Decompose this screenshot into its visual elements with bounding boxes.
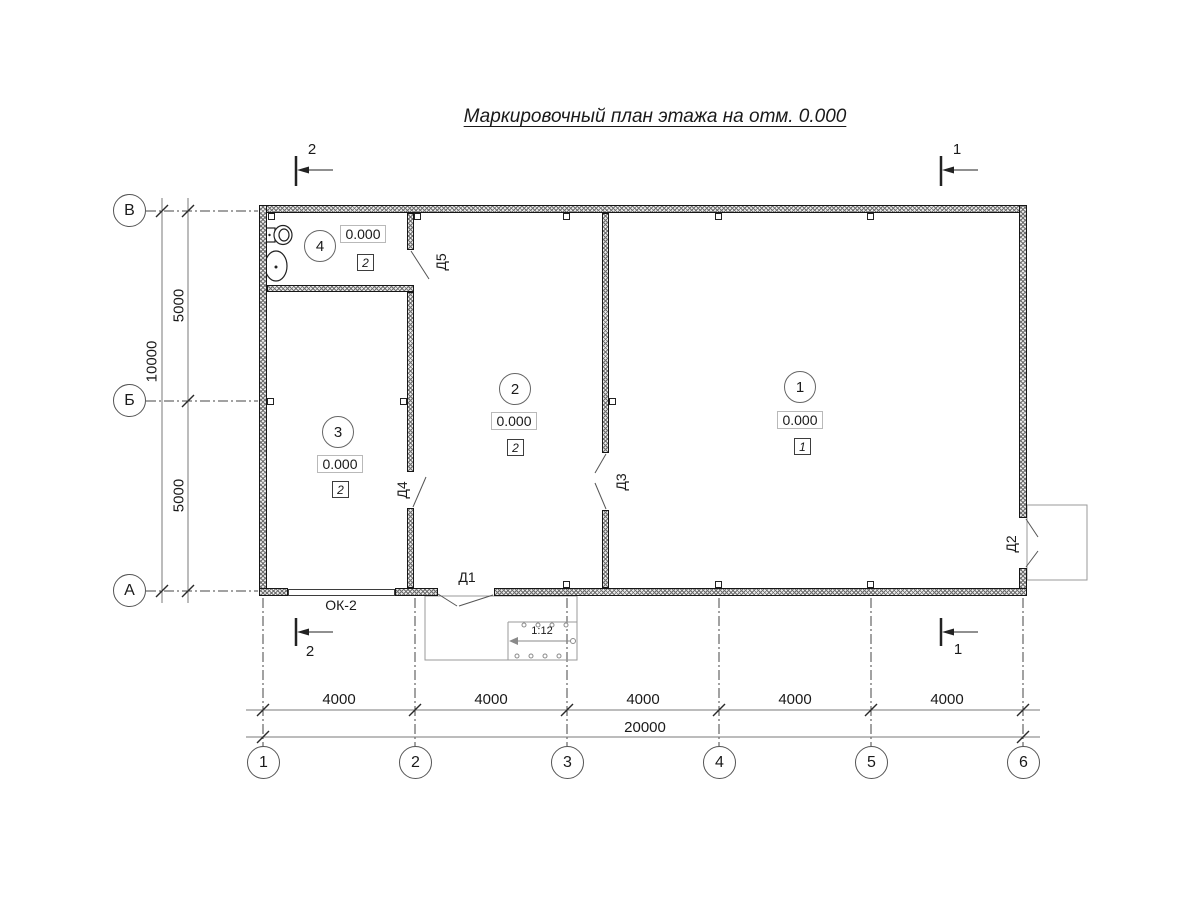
axis-bubble-v: В — [113, 194, 146, 227]
dim-20000-total: 20000 — [618, 719, 672, 736]
wall-exterior-right-upper — [1019, 205, 1027, 518]
wall-interior-a2 — [407, 292, 414, 472]
dim-4000-2: 4000 — [469, 691, 513, 708]
pilaster-tab — [563, 213, 570, 220]
wall-interior-a3 — [407, 508, 414, 588]
pilaster-tab — [267, 398, 274, 405]
dim-4000-4: 4000 — [773, 691, 817, 708]
dim-5000-1: 5000 — [171, 286, 188, 326]
room-3-elevation: 0.000 — [317, 455, 363, 473]
room-4-finish: 2 — [357, 254, 374, 271]
room-1-finish: 1 — [794, 438, 811, 455]
wall-interior-room4-bottom — [267, 285, 414, 292]
window-ok2 — [288, 589, 395, 596]
door-label-d5: Д5 — [433, 249, 449, 275]
dim-5000-2: 5000 — [171, 476, 188, 516]
room-4-number: 4 — [304, 230, 336, 262]
pilaster-tab — [867, 213, 874, 220]
room-2-elevation: 0.000 — [491, 412, 537, 430]
pilaster-tab — [414, 213, 421, 220]
page-title: Маркировочный план этажа на отм. 0.000 — [450, 106, 860, 128]
room-3-number: 3 — [322, 416, 354, 448]
wall-exterior-left — [259, 205, 267, 596]
dim-10000-total: 10000 — [144, 336, 161, 388]
window-label: ОК-2 — [316, 597, 366, 613]
room-3-finish: 2 — [332, 481, 349, 498]
axis-bubble-b: Б — [113, 384, 146, 417]
door-label-d1: Д1 — [453, 569, 481, 585]
floor-plan-drawing: Маркировочный план этажа на отм. 0.000 1… — [0, 0, 1200, 900]
ramp-slope-label: 1:12 — [524, 625, 560, 637]
dim-4000-3: 4000 — [621, 691, 665, 708]
axis-bubble-4: 4 — [703, 746, 736, 779]
pilaster-tab — [563, 581, 570, 588]
wall-exterior-bottom-c — [494, 588, 1027, 596]
axis-bubble-5: 5 — [855, 746, 888, 779]
section-marks — [296, 156, 978, 646]
dim-4000-1: 4000 — [317, 691, 361, 708]
pilaster-tab — [867, 581, 874, 588]
toilet-icon — [266, 226, 292, 245]
room-2-finish: 2 — [507, 439, 524, 456]
room-4-elevation: 0.000 — [340, 225, 386, 243]
room-1-number: 1 — [784, 371, 816, 403]
dim-4000-5: 4000 — [925, 691, 969, 708]
pilaster-tab — [268, 213, 275, 220]
wall-exterior-bottom-a — [259, 588, 288, 596]
wall-interior-a1 — [407, 213, 414, 250]
wall-exterior-bottom-b — [395, 588, 438, 596]
pilaster-tab — [609, 398, 616, 405]
section-label-1-bottom: 1 — [949, 641, 967, 658]
wall-interior-b2 — [602, 510, 609, 588]
section-label-2-bottom: 2 — [301, 643, 319, 660]
room-1-elevation: 0.000 — [777, 411, 823, 429]
pilaster-tab — [400, 398, 407, 405]
axis-bubble-1: 1 — [247, 746, 280, 779]
axis-bubble-6: 6 — [1007, 746, 1040, 779]
pilaster-tab — [715, 581, 722, 588]
ramp-direction-arrow — [509, 637, 576, 645]
dimension-lines — [162, 198, 1040, 737]
sink-icon — [265, 251, 287, 281]
wall-exterior-top — [259, 205, 1027, 213]
door-label-d3: Д3 — [613, 469, 629, 495]
axis-bubble-2: 2 — [399, 746, 432, 779]
axis-bubble-a: А — [113, 574, 146, 607]
section-label-1-top: 1 — [948, 141, 966, 158]
room-2-number: 2 — [499, 373, 531, 405]
door-label-d2: Д2 — [1003, 531, 1019, 557]
section-label-2-top: 2 — [303, 141, 321, 158]
axis-bubble-3: 3 — [551, 746, 584, 779]
pilaster-tab — [715, 213, 722, 220]
door-label-d4: Д4 — [394, 477, 410, 503]
wall-interior-b1 — [602, 213, 609, 453]
